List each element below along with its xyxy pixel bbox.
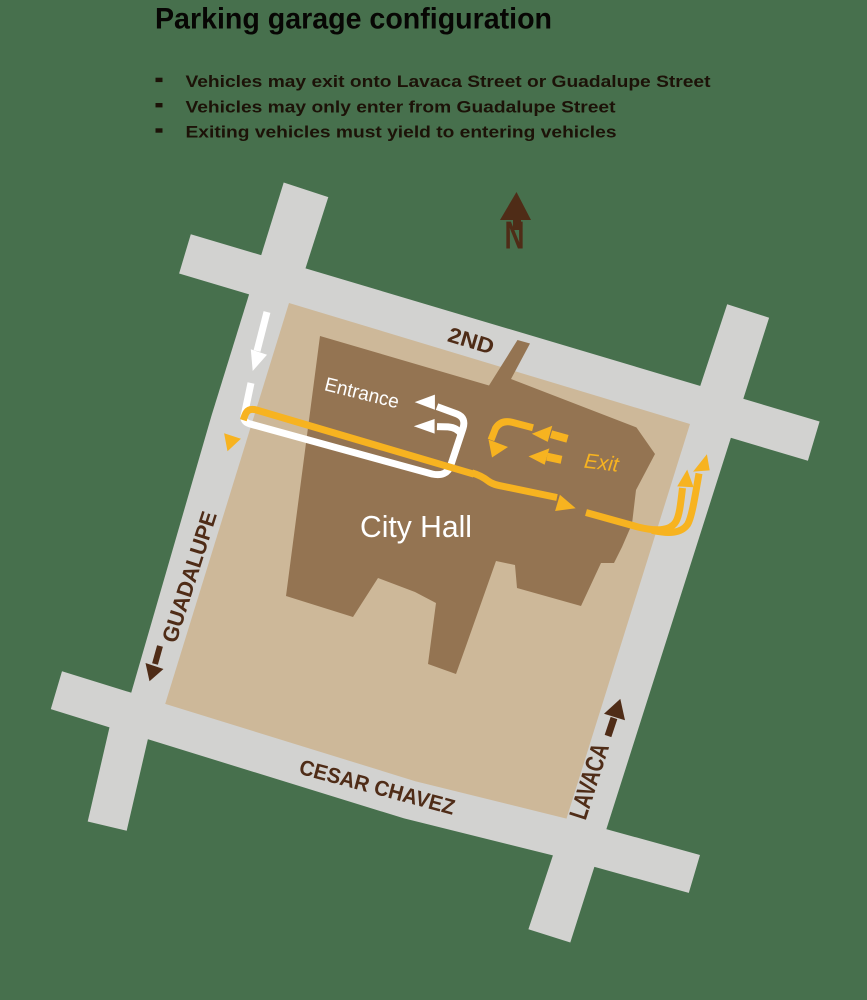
svg-text:Exit: Exit bbox=[583, 450, 621, 477]
svg-text:Vehicles may only enter from G: Vehicles may only enter from Guadalupe S… bbox=[186, 97, 617, 116]
svg-text:Exiting vehicles must yield to: Exiting vehicles must yield to entering … bbox=[186, 123, 617, 142]
svg-text:Vehicles may exit onto Lavaca: Vehicles may exit onto Lavaca Street or … bbox=[186, 72, 712, 91]
svg-text:City Hall: City Hall bbox=[360, 510, 472, 544]
svg-text:Parking garage configuration: Parking garage configuration bbox=[155, 3, 552, 36]
svg-text:N: N bbox=[505, 214, 525, 258]
